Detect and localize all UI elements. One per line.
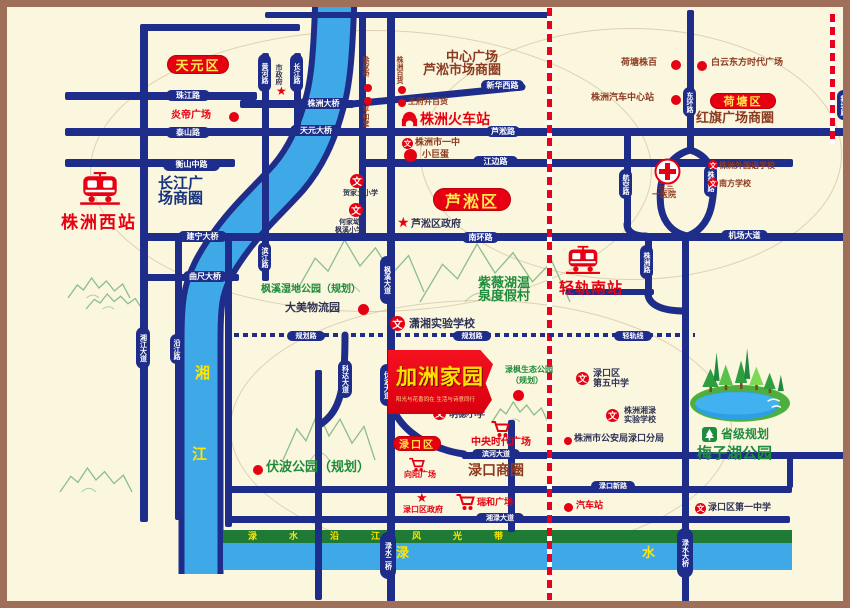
lushui-char2: 水 <box>642 547 655 562</box>
lufeng-park-line2: （规划） <box>511 376 543 385</box>
bus-station: 汽车站 <box>576 501 603 511</box>
lukou-police: 株洲市公安局渌口分局 <box>574 434 664 444</box>
foreign-school-icon: 文 <box>708 160 718 170</box>
lufeng-park-line1: 渌枫生态公园 <box>505 365 553 374</box>
railway-line-1 <box>830 14 835 144</box>
hejiaao-line2: 枫溪小学 <box>335 226 363 234</box>
planned-road-pill-2: 规划路 <box>453 331 491 341</box>
hetang-zhubai-dot <box>671 60 681 70</box>
hejiatu-school-icon: 文 <box>350 174 364 188</box>
zhuzhou-location-map: 天元区荷塘区芦淞区渌口区珠江路泰山路衡山中路黄河路长江路株洲大桥天元大桥新华西路… <box>0 0 850 608</box>
fengxi-wetland-park: 枫溪湿地公园（规划） <box>261 284 361 296</box>
xujiaqiao-dot <box>364 84 372 92</box>
lukou-no1-school-icon: 文 <box>695 503 706 514</box>
hengshan-mid-road-pill: 衡山中路 <box>163 159 220 171</box>
lukou-no1-school: 渌口区第一中学 <box>708 503 771 513</box>
nanfang-school-icon: 文 <box>708 178 718 188</box>
meizihu-park: 梅子湖公园 <box>697 445 772 462</box>
pinghetang-dot <box>364 97 372 105</box>
lukou-cbd: 渌口商圈 <box>468 463 524 479</box>
xianglu-school-icon: 文 <box>606 409 619 422</box>
little-dome: 小巨蛋 <box>422 150 449 160</box>
road-curve-6 <box>627 224 646 236</box>
park-plan-icon <box>702 427 717 442</box>
hetang-zhubai: 荷塘株百 <box>621 58 657 68</box>
baiyun-times-plaza: 白云东方时代广场 <box>711 58 783 68</box>
hejiaao-school-icon: 文 <box>349 203 363 217</box>
zhuzhou-dept-store: 株洲百货 <box>396 56 404 84</box>
provincial-plan: 省级规划 <box>721 428 769 442</box>
xianglu-school-line2: 实验学校 <box>624 415 656 424</box>
xiangjiang-char2: 江 <box>192 446 207 463</box>
jiangbian-road-pill: 江边路 <box>473 156 518 167</box>
road-curve-3 <box>648 295 685 311</box>
changjiang-road-pill: 长江路 <box>290 54 303 92</box>
central-times-plaza: 中央时代广场 <box>471 437 531 449</box>
fubo-park: 伏波公园（规划） <box>266 461 370 476</box>
railway-station-icon <box>400 110 419 127</box>
xiaoxiang-school: 潇湘实验学校 <box>409 318 475 331</box>
lukou-new-road-pill: 渌口新路 <box>591 481 635 491</box>
lushui-char1: 渌 <box>396 547 409 562</box>
quchi-bridge-pill: 曲尺大桥 <box>183 271 227 282</box>
light-rail-line-pill: 轻轨线 <box>614 331 652 341</box>
ruihe-cart-icon <box>455 493 475 511</box>
lukou-gov-star-icon: ★ <box>416 492 428 505</box>
binhe-avenue-pill: 滨河大道 <box>472 449 520 459</box>
hetang-district: 荷塘区 <box>710 93 776 109</box>
hospital-331-cross-icon <box>654 158 681 185</box>
lufeng-dot <box>513 390 524 401</box>
no1-middle-school: 株洲市一中 <box>415 138 460 148</box>
donghuan-road-pill: 东环路 <box>683 87 696 117</box>
hejiatu-primary: 贺家土小学 <box>343 189 378 197</box>
yandi-dot <box>229 112 239 122</box>
binjiang-road-pill: 滨江路 <box>258 242 271 272</box>
zhubaihuo-dot <box>398 86 406 94</box>
light-rail-south-station: 轻轨南站 <box>559 280 623 297</box>
planned-road-pill-1: 规划路 <box>287 331 325 341</box>
xiangyang-cart-icon <box>408 457 425 472</box>
ziwei-lake-line2: 泉度假村 <box>478 290 530 305</box>
zhuzhou-railway-station: 株洲火车站 <box>420 112 490 128</box>
changjiang-cbd-line2: 场商圈 <box>158 190 203 207</box>
wangfujing-store: 王府井百货 <box>408 97 448 106</box>
property-title: 加洲家园 <box>396 361 484 391</box>
fengxi-avenue-pill: 枫溪大道 <box>380 256 394 304</box>
huanghe-road-pill: 黄河路 <box>258 54 271 92</box>
greenbelt-label: 渌水沿江风光带 <box>248 532 535 542</box>
wangfujing-dot <box>398 99 406 107</box>
pinghetang: 平和堂 <box>362 106 370 127</box>
xujiaqiao: 徐家桥 <box>362 56 370 77</box>
auto-center-station: 株洲汽车中心站 <box>591 93 654 103</box>
ruihe-plaza: 瑞和广场 <box>477 498 513 508</box>
hospital-331-line2: 一医院 <box>652 190 676 199</box>
xinhua-west-road-pill: 新华西路 <box>481 80 524 91</box>
xianglu-school-line1: 株洲湘渌 <box>624 406 656 415</box>
lusong-gov-star-icon: ★ <box>397 216 410 230</box>
police-dot <box>564 437 572 445</box>
lusong-market-cbd: 芦淞市场商圈 <box>423 64 501 79</box>
xiangjiang-char1: 湘 <box>195 365 210 382</box>
auto-center-dot <box>671 95 681 105</box>
xiaoxiang-school-icon: 文 <box>390 316 405 331</box>
lukou-district: 渌口区 <box>393 436 441 451</box>
central-plaza-cart-icon <box>490 420 510 438</box>
railway-line-0 <box>547 8 552 600</box>
jianning-bridge-pill: 建宁大桥 <box>178 231 227 242</box>
hongqi-plaza-cbd: 红旗广场商圈 <box>696 112 774 127</box>
zhuzhou-bridge-pill: 株洲大桥 <box>299 98 348 109</box>
lightrail-station-train-icon <box>565 245 601 275</box>
taishan-road-pill: 泰山路 <box>166 127 210 138</box>
fubo-dot <box>253 465 263 475</box>
lusong-gov: 芦淞区政府 <box>411 219 461 231</box>
damei-dot <box>358 304 369 315</box>
tianyuan-bridge-pill: 天元大桥 <box>290 125 342 136</box>
meizihu-lake-art <box>688 334 790 428</box>
zhujiang-road-pill: 珠江路 <box>166 90 210 101</box>
hangkong-road-pill: 航空路 <box>619 169 632 199</box>
damei-logistics-park: 大美物流园 <box>285 302 340 315</box>
lukou-5th-school-line1: 渌口区 <box>593 369 620 379</box>
lukou-5th-school-line2: 第五中学 <box>593 379 629 389</box>
keda-avenue-pill: 科达大道 <box>338 360 352 398</box>
zhuzhou-road-pill: 株洲路 <box>640 245 653 279</box>
xiangjiang-avenue-pill: 湘江大道 <box>136 327 150 369</box>
city-gov: 市政府 <box>275 64 283 85</box>
xianglu-avenue-pill: 湘渌大道 <box>476 513 524 523</box>
lushui-bridge-pill: 渌水大桥 <box>677 528 693 578</box>
baiyun-dot <box>697 61 707 71</box>
west-station-train-icon <box>79 171 121 205</box>
property-banner: 加洲家园 阳光与花香同在 生活与诗意同行 <box>388 350 493 414</box>
nanhuan-road-pill: 南环路 <box>462 232 499 243</box>
nanfang-school: 南方学校 <box>719 179 751 188</box>
hejiaao-line1: 何家坳 <box>339 218 360 226</box>
yanjiang-road-pill: 沿江路 <box>170 334 183 364</box>
lusong-district: 芦淞区 <box>433 188 511 211</box>
city-gov-star-icon: ★ <box>276 85 287 97</box>
road-curves-layer <box>0 0 850 608</box>
yandi-plaza: 炎帝广场 <box>171 110 211 122</box>
little-dome-dot <box>404 149 417 162</box>
foreign-language-school: 株洲外国语学校 <box>719 161 775 170</box>
no1-middle-school-icon: 文 <box>402 138 413 149</box>
lukou-gov: 渌口区政府 <box>403 505 443 514</box>
tianyuan-district: 天元区 <box>167 55 229 74</box>
property-slogan: 阳光与花香同在 生活与诗意同行 <box>396 394 475 402</box>
xintang-road-pill: 新塘路 <box>837 90 850 120</box>
bus-station-dot <box>564 503 573 512</box>
jichang-avenue-pill: 机场大道 <box>721 230 768 241</box>
zhuzhou-west-station: 株洲西站 <box>61 214 137 234</box>
lusong-road-pill: 芦淞路 <box>486 126 520 137</box>
lukou-5th-school-icon: 文 <box>576 372 589 385</box>
